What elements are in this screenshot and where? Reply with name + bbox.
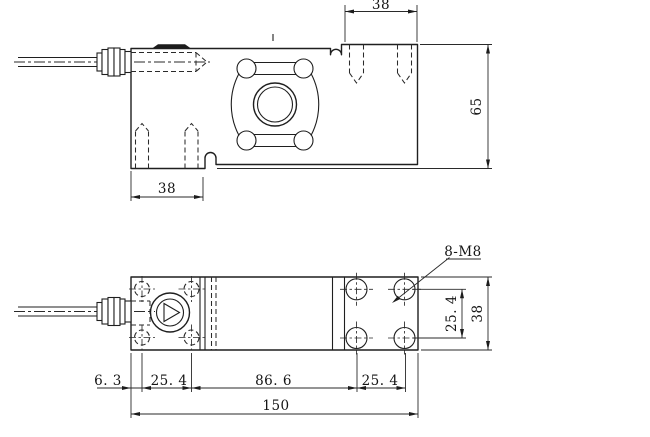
dim-hole-pitch-vertical-label: 25. 4: [444, 295, 460, 332]
center-bore-inner: [258, 87, 293, 122]
dim-edge-offset-label: 6. 3: [94, 373, 122, 389]
load-cell-technical-drawing: 38 65 38: [0, 0, 650, 437]
center-boss: [151, 293, 190, 332]
body-outline: [131, 45, 418, 169]
dim-total-length-label: 150: [262, 398, 289, 414]
drawing-sheet: 38 65 38: [0, 0, 650, 437]
dim-top-width: 38: [345, 0, 417, 42]
drill-point: [164, 304, 180, 322]
dim-bottom-width-label: 38: [158, 181, 176, 197]
dim-center-span-label: 86. 6: [255, 373, 292, 389]
tapped-hole-bottom: [185, 124, 198, 169]
tapped-hole-top: [398, 45, 412, 84]
body-outline: [131, 277, 418, 350]
flexure-cutout: [231, 59, 318, 150]
dim-left-hole-pitch-label: 25. 4: [151, 373, 188, 389]
dim-height: 65: [217, 45, 492, 169]
dim-hole-pitch-vertical: 25. 4: [413, 289, 466, 338]
dim-body-width-label: 38: [470, 304, 486, 322]
tapped-hole-hidden: [129, 276, 155, 302]
seal-cover-tab: [152, 44, 191, 48]
dim-bottom-width: 38: [131, 171, 203, 201]
dim-chain-row: 6. 3 25. 4 86. 6 25. 4: [94, 353, 418, 418]
dim-top-width-label: 38: [372, 0, 390, 13]
internal-edges: [200, 277, 345, 350]
dim-total-length: 150: [131, 398, 418, 416]
dim-height-label: 65: [469, 97, 485, 115]
thread-callout: 8-M8: [392, 244, 482, 303]
hidden-gland-bore: [131, 301, 150, 325]
thread-callout-label: 8-M8: [444, 244, 482, 260]
center-bore-outer: [254, 83, 297, 126]
plan-view: 8-M8 25. 4 38: [14, 244, 492, 418]
tapped-hole-top: [350, 45, 364, 84]
tapped-hole-hidden: [129, 325, 155, 351]
dim-right-hole-pitch-label: 25. 4: [362, 373, 399, 389]
tapped-hole-bottom: [136, 124, 149, 169]
side-view: 38 65 38: [14, 0, 492, 201]
